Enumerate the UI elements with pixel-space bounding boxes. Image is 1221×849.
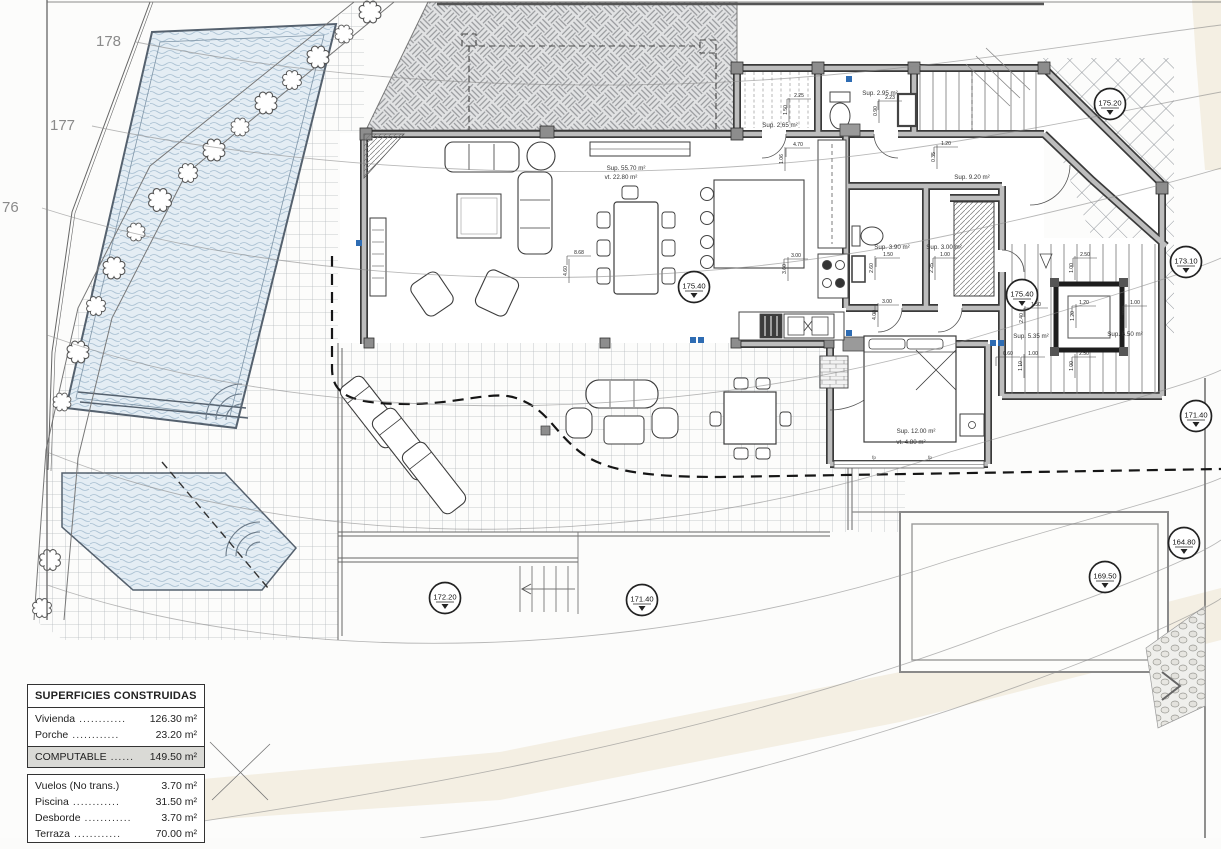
legend-title: SUPERFICIES CONSTRUIDAS bbox=[28, 685, 204, 708]
contour-label: 178 bbox=[96, 33, 121, 50]
round-table bbox=[527, 142, 555, 170]
legend-row-porche: Porche ............ 23.20 m² bbox=[28, 727, 204, 743]
dimension-label: 1.90 bbox=[1120, 311, 1126, 321]
dimension-label: 0.35 bbox=[931, 152, 937, 162]
dimension-label: 3.60 bbox=[782, 264, 788, 274]
floor-plan-page: 175.20 173.10 175.40 175.40 171.40 172.2… bbox=[0, 0, 1221, 838]
legend-value: 31.50 m² bbox=[152, 796, 197, 808]
legend-value: 3.70 m² bbox=[157, 780, 197, 792]
dimension-label: 1.00 bbox=[1130, 300, 1140, 306]
upper-driveway-paving bbox=[366, 2, 737, 130]
appliance bbox=[840, 124, 860, 136]
dimension-label: 1.50 bbox=[883, 252, 893, 258]
chair bbox=[597, 212, 610, 228]
room-label: Sup. 9.20 m² bbox=[954, 174, 989, 181]
washbasin-icon bbox=[898, 94, 916, 126]
dimension-label: 0.60 bbox=[1003, 351, 1013, 357]
level-marker: 164.80 bbox=[1169, 528, 1200, 559]
level-marker: 169.50 bbox=[1090, 562, 1121, 593]
room-label: vt. 4.80 m² bbox=[896, 439, 925, 446]
pillow bbox=[907, 339, 943, 349]
level-marker: 172.20 bbox=[430, 583, 461, 614]
sofa bbox=[445, 142, 519, 172]
dimension-label: 1.50 bbox=[1031, 302, 1041, 308]
dimension-label: 2.50 bbox=[1079, 351, 1089, 357]
dimension-label: 1.20 bbox=[1079, 300, 1089, 306]
shower-tray bbox=[820, 356, 848, 388]
legend-label: Vuelos (No trans.) bbox=[35, 780, 119, 792]
dimension-label: 1.50 bbox=[783, 105, 789, 115]
dimension-label: 1.06 bbox=[779, 154, 785, 164]
surfaces-legend: SUPERFICIES CONSTRUIDAS Vivienda .......… bbox=[27, 684, 205, 849]
toilet-icon bbox=[861, 227, 883, 245]
chair bbox=[662, 268, 675, 284]
chair bbox=[597, 240, 610, 256]
dimension-label: 1.20 bbox=[941, 141, 951, 147]
room-label: Sup. 12.00 m² bbox=[897, 428, 936, 435]
washbasin-icon bbox=[852, 256, 865, 282]
legend-dots: ............ bbox=[85, 812, 132, 824]
level-marker: 173.10 bbox=[1171, 247, 1202, 278]
stool-icon bbox=[701, 188, 714, 201]
dimension-label: 2.25 bbox=[929, 263, 935, 273]
chair bbox=[756, 378, 770, 389]
chair bbox=[662, 212, 675, 228]
legend-dots: ............ bbox=[79, 713, 126, 725]
legend-dots: ............ bbox=[72, 729, 119, 741]
dimension-label: 1.00 bbox=[940, 252, 950, 258]
dimension-label: 2.23 bbox=[885, 95, 895, 101]
chair bbox=[780, 412, 791, 426]
dimension-label: 4.70 bbox=[793, 142, 803, 148]
level-value: 175.20 bbox=[1098, 99, 1121, 108]
outdoor-armchair bbox=[652, 408, 678, 438]
legend-dots: ............ bbox=[73, 796, 120, 808]
level-value: 173.10 bbox=[1174, 257, 1197, 266]
dimension-label: 1.00 bbox=[1069, 263, 1075, 273]
chair bbox=[734, 378, 748, 389]
room-label: vt. 22.80 m² bbox=[605, 174, 638, 181]
dimension-label: 2.50 bbox=[1080, 252, 1090, 258]
stool-icon bbox=[701, 212, 714, 225]
room-label: Sup. 2.65 m² bbox=[762, 122, 797, 129]
level-value: 164.80 bbox=[1172, 538, 1195, 547]
legend-value: 149.50 m² bbox=[146, 751, 197, 763]
room-label: Sup. 55.70 m² bbox=[607, 165, 646, 172]
room-label: Sup. 5.35 m² bbox=[1013, 333, 1048, 340]
bed-tag: fp bbox=[872, 455, 876, 460]
dimension-label: 1.00 bbox=[1028, 351, 1038, 357]
level-value: 175.40 bbox=[1010, 290, 1033, 299]
chair bbox=[662, 240, 675, 256]
legend-row-computable: COMPUTABLE ...... 149.50 m² bbox=[28, 746, 204, 767]
elevator-shaft bbox=[1050, 278, 1128, 356]
dimension-label: 4.60 bbox=[563, 266, 569, 276]
legend-value: 70.00 m² bbox=[152, 828, 197, 840]
level-marker: 171.40 bbox=[627, 585, 658, 616]
dimension-label: 1.10 bbox=[1018, 361, 1024, 371]
legend-row-piscina: Piscina ............ 31.50 m² bbox=[28, 794, 204, 810]
dimension-label: 2.60 bbox=[869, 263, 875, 273]
level-value: 172.20 bbox=[433, 593, 456, 602]
chair bbox=[622, 186, 638, 199]
legend-dots: ...... bbox=[111, 751, 135, 763]
level-value: 171.40 bbox=[630, 595, 653, 604]
legend-label: Terraza bbox=[35, 828, 70, 840]
legend-value: 23.20 m² bbox=[152, 729, 197, 741]
contour-label: 177 bbox=[50, 117, 75, 134]
dimension-label: 0.90 bbox=[873, 106, 879, 116]
legend-row-vuelos: Vuelos (No trans.) 3.70 m² bbox=[28, 778, 204, 794]
contour-label: 76 bbox=[2, 199, 19, 216]
dimension-label: 2.25 bbox=[794, 93, 804, 99]
bed-tag: fp bbox=[928, 455, 932, 460]
dimension-label: 4.00 bbox=[872, 310, 878, 320]
dining-table bbox=[614, 202, 658, 294]
chair bbox=[756, 448, 770, 459]
outdoor-dining-table bbox=[724, 392, 776, 444]
legend-label: Porche bbox=[35, 729, 68, 741]
dimension-label: 1.20 bbox=[1070, 311, 1076, 321]
outdoor-armchair bbox=[566, 408, 592, 438]
legend-value: 3.70 m² bbox=[157, 812, 197, 824]
outdoor-sofa bbox=[586, 380, 658, 408]
legend-label: Desborde bbox=[35, 812, 81, 824]
legend-label: Piscina bbox=[35, 796, 69, 808]
stool-icon bbox=[701, 236, 714, 249]
level-value: 169.50 bbox=[1093, 572, 1116, 581]
outdoor-coffee-table bbox=[604, 416, 644, 444]
legend-dots: ............ bbox=[74, 828, 121, 840]
level-value: 171.40 bbox=[1184, 411, 1207, 420]
stove-icon bbox=[818, 254, 848, 298]
room-label: Sup. 3.00 m² bbox=[926, 244, 961, 251]
legend-value: 126.30 m² bbox=[146, 713, 197, 725]
legend-label: COMPUTABLE bbox=[35, 751, 107, 763]
legend-label: Vivienda bbox=[35, 713, 75, 725]
pillow bbox=[869, 339, 905, 349]
legend-row-desborde: Desborde ............ 3.70 m² bbox=[28, 810, 204, 826]
dimension-label: 3.00 bbox=[882, 299, 892, 305]
chair bbox=[734, 448, 748, 459]
level-marker: 175.20 bbox=[1095, 89, 1126, 120]
legend-row-vivienda: Vivienda ............ 126.30 m² bbox=[28, 711, 204, 727]
chair bbox=[710, 412, 721, 426]
level-marker: 171.40 bbox=[1181, 401, 1212, 432]
room-label: Sup. 6.50 m² bbox=[1107, 331, 1142, 338]
dimension-label: 3.00 bbox=[791, 253, 801, 259]
level-value: 175.40 bbox=[682, 282, 705, 291]
sofa bbox=[518, 172, 552, 254]
level-marker: 175.40 bbox=[679, 272, 710, 303]
legend-row-terraza: Terraza ............ 70.00 m² bbox=[28, 826, 204, 842]
room-label: Sup. 3.90 m² bbox=[874, 244, 909, 251]
dimension-label: 8.68 bbox=[574, 250, 584, 256]
stool-icon bbox=[701, 256, 714, 269]
dimension-label: 2.40 bbox=[1019, 313, 1025, 323]
dimension-label: 1.00 bbox=[1069, 361, 1075, 371]
